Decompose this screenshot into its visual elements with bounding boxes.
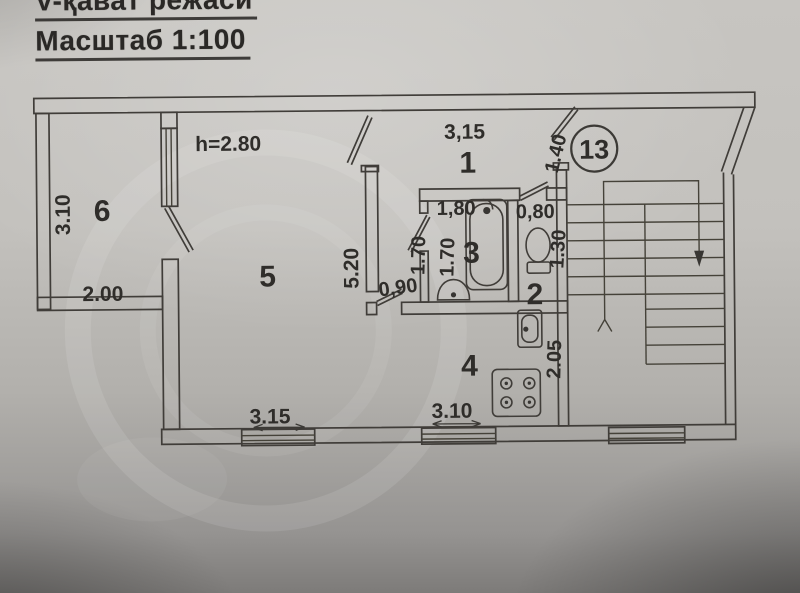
room-number-bathroom: 3 [463,237,480,270]
dim-kitchen-door: 0,90 [377,275,418,302]
room-number-hall: 1 [459,147,476,180]
outer-walls [34,92,758,445]
room-number-wc: 2 [526,278,543,311]
dim-bathtub-length: 1,80 [437,198,476,220]
wc-door-leaf [520,182,549,200]
floor-plan-scan: V-қават режаси Масштаб 1:100 [0,0,800,593]
ceiling-height-label: h=2.80 [195,133,261,157]
dim-kitchen-depth: 2.05 [543,340,566,380]
dim-balcony-width: 2.00 [82,283,123,306]
dim-corridor-width: 1.70 [407,236,430,276]
floor-plan-drawing: 13 1 2 3 4 5 6 h=2.80 3.10 2.00 3.15 5.2… [0,0,800,593]
dim-wc-width: 0,80 [516,201,555,223]
watermark [74,141,455,522]
dim-balcony-depth: 3.10 [52,194,75,235]
dim-hall-width: 3,15 [444,121,485,144]
dim-living-window: 3.15 [249,405,290,428]
staircase [567,180,726,364]
room-number-balcony: 6 [94,195,111,228]
dim-wc-depth: 1.30 [546,229,570,269]
kitchen-sink-icon [518,310,542,347]
room-number-living: 5 [259,260,276,293]
dim-entrance-door: 1.40 [541,132,571,175]
dim-bathroom-width: 1.70 [436,237,459,277]
room-number-kitchen: 4 [461,350,478,383]
apartment-number: 13 [579,134,609,164]
dim-kitchen-window: 3.10 [431,400,472,423]
dim-living-wall: 5.20 [340,248,363,289]
scanned-page: V-қават режаси Масштаб 1:100 [0,0,800,593]
stove-icon [492,369,540,416]
